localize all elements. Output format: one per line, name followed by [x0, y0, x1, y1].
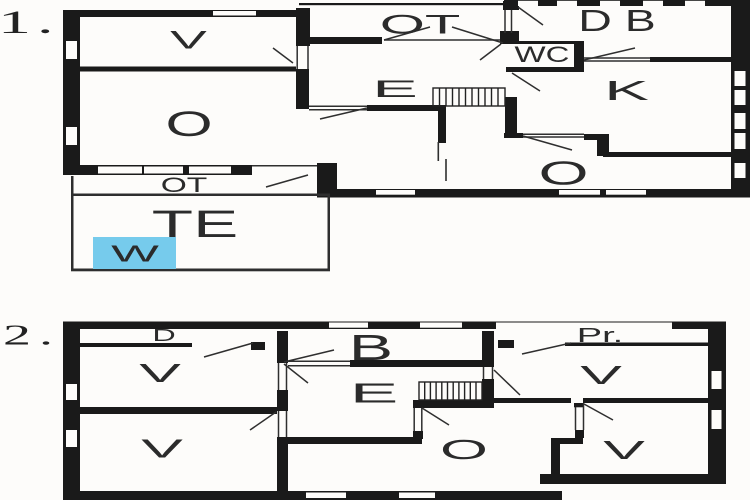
svg-text:1.: 1.: [0, 5, 59, 41]
svg-text:E: E: [372, 75, 418, 102]
svg-text:D: D: [152, 325, 175, 346]
svg-text:V: V: [141, 435, 183, 464]
svg-text:O: O: [538, 155, 588, 192]
svg-text:Pr.: Pr.: [577, 325, 623, 347]
svg-text:O: O: [440, 434, 488, 465]
svg-text:V: V: [580, 361, 622, 390]
svg-text:TE: TE: [152, 202, 238, 245]
svg-text:OT: OT: [380, 9, 461, 39]
svg-text:K: K: [604, 74, 649, 106]
svg-text:OT: OT: [161, 173, 208, 196]
svg-text:V: V: [603, 436, 645, 465]
svg-text:D B: D B: [578, 4, 655, 39]
svg-text:V: V: [170, 26, 207, 54]
svg-text:B: B: [349, 328, 393, 368]
svg-text:WC: WC: [515, 42, 570, 66]
svg-text:V: V: [139, 359, 181, 388]
svg-text:E: E: [350, 377, 399, 408]
svg-text:O: O: [165, 105, 212, 144]
svg-text:2.: 2.: [3, 320, 61, 351]
svg-text:W: W: [111, 241, 159, 267]
